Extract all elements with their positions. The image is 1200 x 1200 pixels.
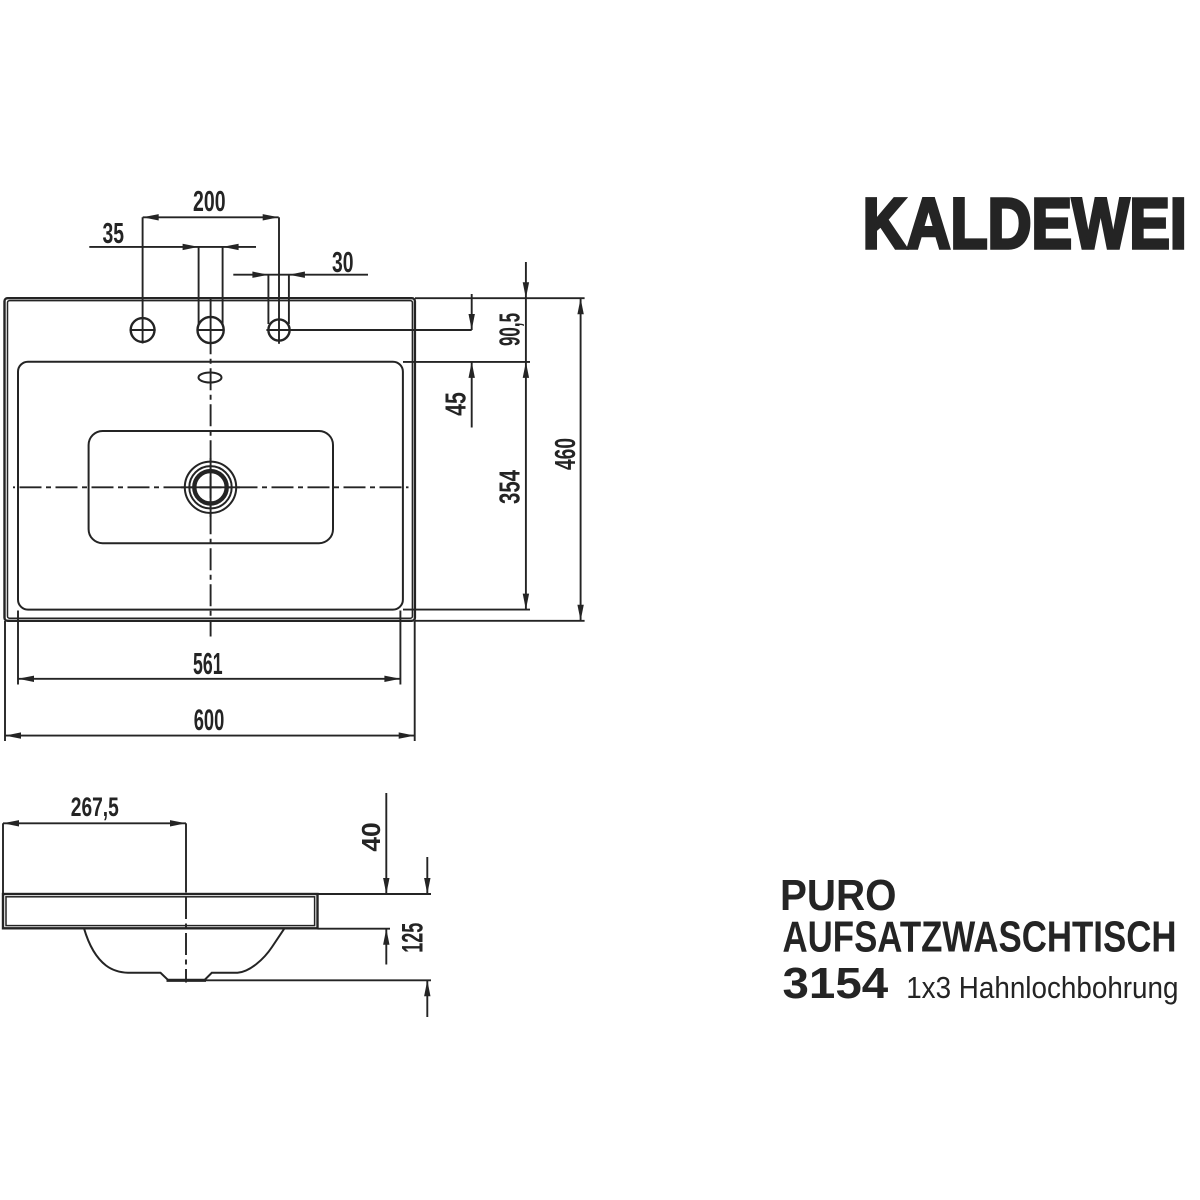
svg-text:354: 354 xyxy=(495,470,527,504)
svg-text:460: 460 xyxy=(550,438,582,470)
svg-text:KALDEWEI: KALDEWEI xyxy=(863,185,1187,264)
svg-text:30: 30 xyxy=(332,247,354,279)
svg-text:125: 125 xyxy=(397,923,430,953)
svg-text:AUFSATZWASCHTISCH: AUFSATZWASCHTISCH xyxy=(783,912,1177,961)
svg-text:40: 40 xyxy=(356,822,386,851)
svg-text:600: 600 xyxy=(194,704,225,737)
svg-text:35: 35 xyxy=(103,218,125,250)
svg-text:200: 200 xyxy=(193,186,226,218)
svg-text:3154: 3154 xyxy=(783,959,889,1008)
svg-text:561: 561 xyxy=(193,646,223,681)
svg-text:45: 45 xyxy=(441,392,473,416)
svg-text:90,5: 90,5 xyxy=(495,313,527,346)
svg-text:1x3 Hahnlochbohrung: 1x3 Hahnlochbohrung xyxy=(906,970,1178,1005)
svg-text:267,5: 267,5 xyxy=(71,792,119,822)
